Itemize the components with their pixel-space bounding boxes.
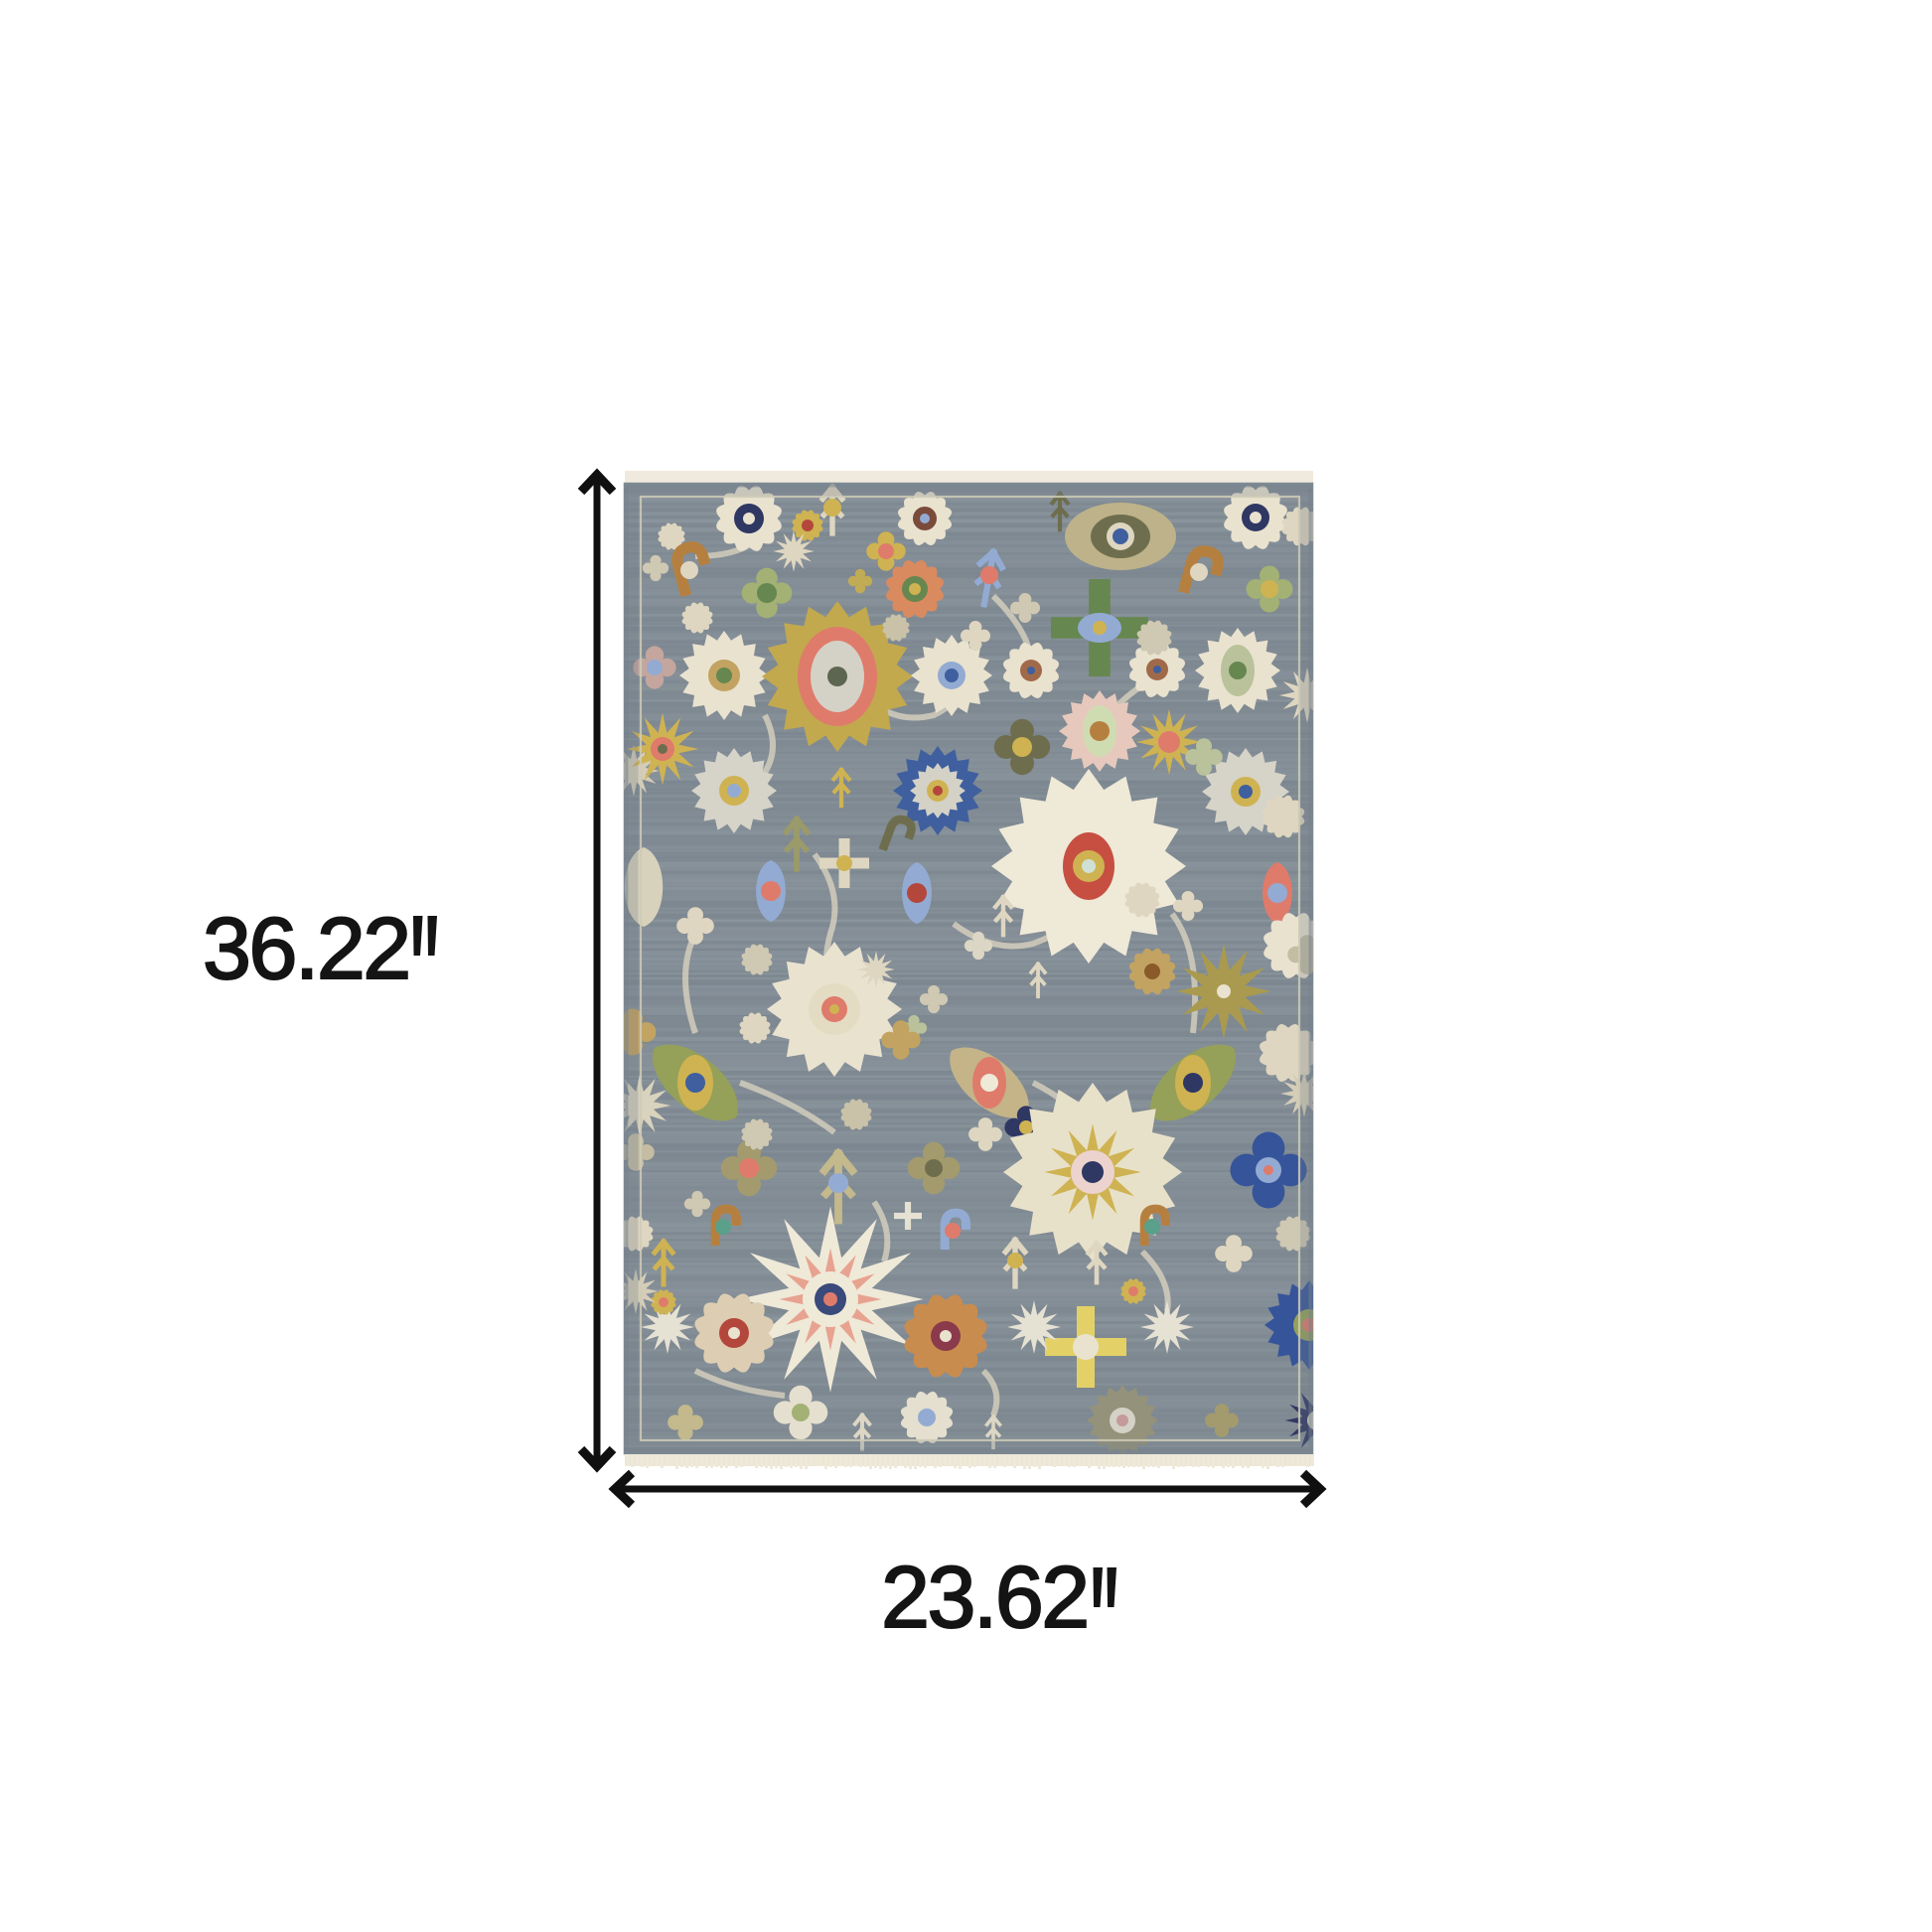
svg-text:36.22: 36.22 xyxy=(203,899,409,997)
svg-text:23.62: 23.62 xyxy=(881,1548,1088,1646)
